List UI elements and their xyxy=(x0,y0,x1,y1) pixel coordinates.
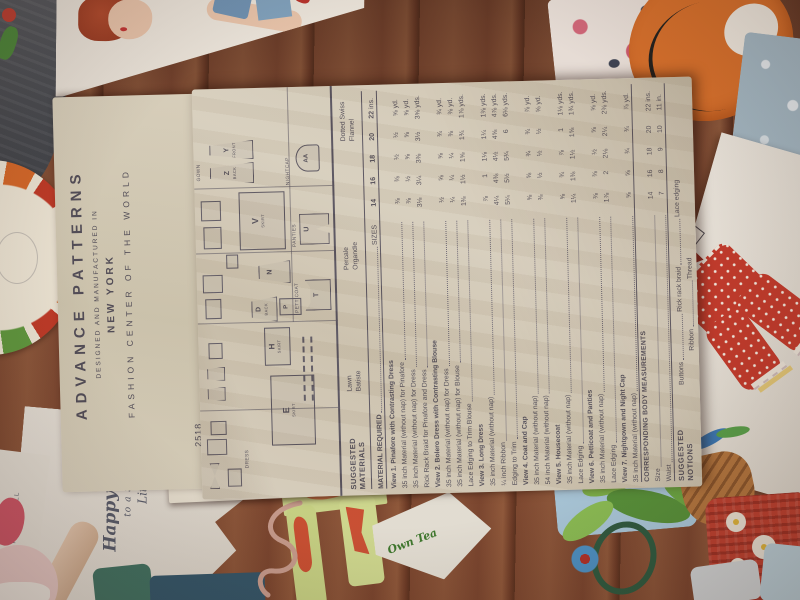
pattern-piece-z: Z BACK xyxy=(210,162,255,184)
materials-column: Lawn Batiste xyxy=(346,370,364,391)
diagram-divider xyxy=(196,250,336,255)
pattern-piece-v: V SKIRT xyxy=(238,191,286,250)
size-value: 22 xyxy=(368,111,376,133)
bow-piece xyxy=(210,463,221,489)
size-value: 20 xyxy=(369,133,377,155)
mini-piece xyxy=(203,275,223,294)
notion-item: Thread xyxy=(686,257,694,279)
white-sliver xyxy=(0,582,50,600)
mini-piece xyxy=(208,387,226,401)
flower-center xyxy=(733,519,739,525)
red-paper-scrap xyxy=(2,8,16,22)
white-flower xyxy=(726,512,746,532)
instruction-sheet: DRESS E SKIRT H SKIRT P D BACK xyxy=(192,77,703,500)
suggested-materials-label: SUGGESTED MATERIALS xyxy=(346,393,367,489)
notion-item: Ribbon xyxy=(688,329,696,351)
pattern-piece-h: H SKIRT xyxy=(264,327,291,366)
teal-paper-scrap xyxy=(92,563,154,600)
diagram-divider xyxy=(198,320,338,325)
pattern-piece-n: N xyxy=(258,260,291,284)
photo-scene: Own Tea Happy Easter to a Sweet Little P… xyxy=(0,0,800,600)
mini-piece xyxy=(210,421,226,435)
pattern-piece-aa: AA xyxy=(295,144,320,172)
leader-dots xyxy=(691,281,693,327)
diagram-divider xyxy=(194,185,334,190)
size-value: 18 xyxy=(369,155,377,177)
doll-lips xyxy=(120,27,127,31)
size-value: 16 xyxy=(370,177,378,199)
size-value: 14 xyxy=(371,199,379,221)
mini-piece xyxy=(205,299,222,319)
mini-piece xyxy=(228,468,242,486)
pipe-cleaner-squiggle xyxy=(248,495,318,600)
pattern-piece-e: E SKIRT xyxy=(270,375,316,446)
pencil-sketch-mark xyxy=(0,232,38,284)
pattern-envelope: ADVANCE PATTERNS DESIGNED AND MANUFACTUR… xyxy=(52,94,210,493)
doll-red-accent xyxy=(293,0,312,5)
blue-flower xyxy=(570,545,600,573)
material-required-label: MATERIAL REQUIRED xyxy=(376,414,385,489)
sizes-label: SIZES xyxy=(371,225,379,245)
diagram-divider xyxy=(287,87,294,322)
panties-label: PANTIES xyxy=(292,224,298,247)
materials-column: Percale Organdie xyxy=(343,242,361,270)
pattern-piece-t: T xyxy=(305,279,332,311)
light-blue-paper-patch xyxy=(759,543,800,600)
size-unit: ins. xyxy=(368,91,376,111)
doll-face xyxy=(108,0,152,39)
gown-label: GOWN xyxy=(197,164,202,181)
materials-column: Dotted Swiss Flannel xyxy=(339,101,357,141)
materials-columns: Lawn Batiste Percale Organdie Dotted Swi… xyxy=(339,91,364,393)
pattern-piece-d: D BACK xyxy=(251,296,278,322)
mini-piece xyxy=(203,227,222,249)
material-required-rows: View 1. Pinafore with Contrasting Dress … xyxy=(378,83,674,488)
dress-label: DRESS xyxy=(245,450,250,469)
petticoat-label: PETTICOAT xyxy=(295,283,301,313)
cutting-diagram: DRESS E SKIRT H SKIRT P D BACK xyxy=(192,86,343,500)
mini-piece xyxy=(208,343,222,359)
suggested-notions-label: SUGGESTED NOTIONS xyxy=(675,384,701,481)
mini-piece xyxy=(207,367,225,381)
leader-dots xyxy=(376,247,381,412)
mini-piece xyxy=(201,201,222,222)
tagline-text: FASHION CENTER OF THE WORLD xyxy=(118,96,138,491)
pattern-piece-u: U xyxy=(299,213,330,245)
nightcap-label: NIGHTCAP xyxy=(286,157,292,185)
mini-piece xyxy=(207,439,227,456)
pattern-piece-y: Y FRONT xyxy=(209,140,253,160)
mini-piece xyxy=(226,254,238,268)
